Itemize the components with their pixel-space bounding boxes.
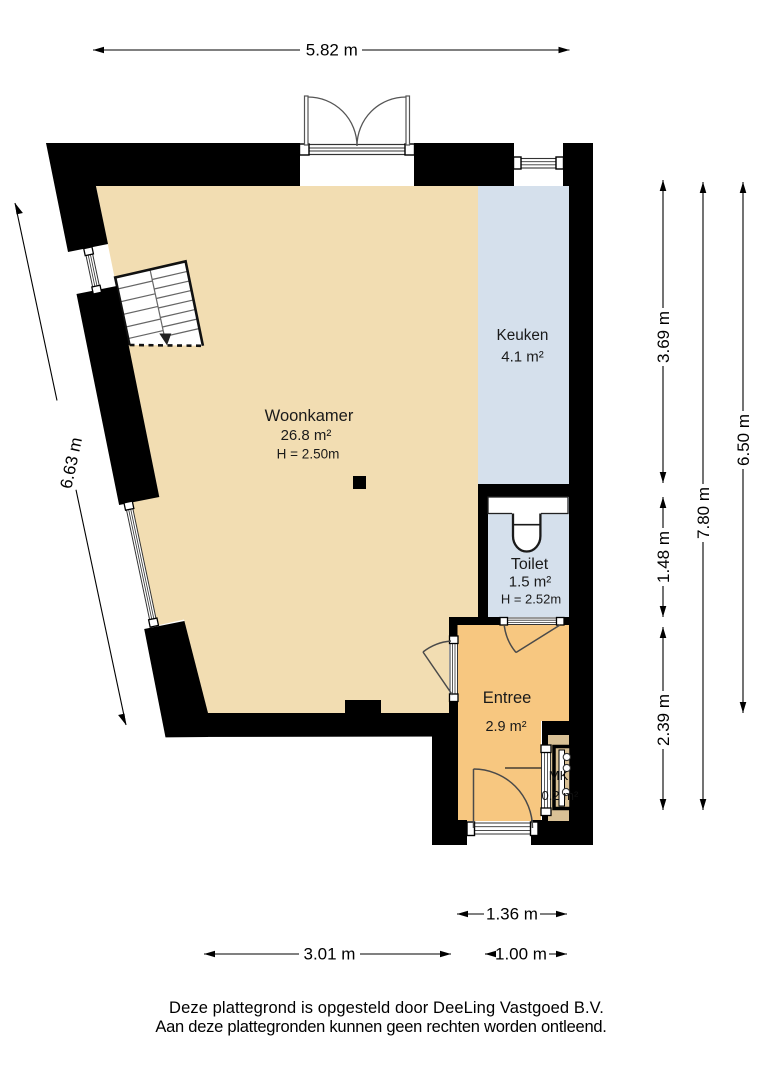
svg-text:7.80 m: 7.80 m — [694, 487, 713, 539]
svg-text:3.69 m: 3.69 m — [654, 311, 673, 363]
svg-text:1.36 m: 1.36 m — [486, 905, 538, 924]
svg-text:Entree: Entree — [483, 689, 532, 707]
svg-text:6.50 m: 6.50 m — [734, 414, 753, 466]
svg-text:26.8 m²: 26.8 m² — [281, 427, 332, 444]
svg-text:2.9 m²: 2.9 m² — [485, 719, 526, 735]
svg-text:Deze plattegrond is opgesteld: Deze plattegrond is opgesteld door DeeLi… — [169, 999, 604, 1017]
svg-text:5.82 m: 5.82 m — [306, 41, 358, 60]
svg-text:H = 2.50m: H = 2.50m — [277, 447, 340, 462]
svg-text:1.48 m: 1.48 m — [654, 531, 673, 583]
svg-text:Woonkamer: Woonkamer — [265, 407, 354, 425]
svg-text:0.2 m²: 0.2 m² — [542, 788, 580, 803]
svg-text:MK: MK — [549, 768, 569, 783]
svg-text:Toilet: Toilet — [511, 556, 549, 573]
svg-text:Aan deze plattegronden kunnen: Aan deze plattegronden kunnen geen recht… — [155, 1018, 606, 1036]
svg-text:1.5 m²: 1.5 m² — [509, 573, 552, 590]
svg-text:1.00 m: 1.00 m — [495, 945, 547, 964]
svg-text:Keuken: Keuken — [497, 327, 549, 344]
svg-text:3.01 m: 3.01 m — [304, 945, 356, 964]
svg-text:4.1 m²: 4.1 m² — [501, 349, 544, 366]
svg-text:2.39 m: 2.39 m — [654, 694, 673, 746]
svg-text:H = 2.52m: H = 2.52m — [501, 592, 561, 607]
